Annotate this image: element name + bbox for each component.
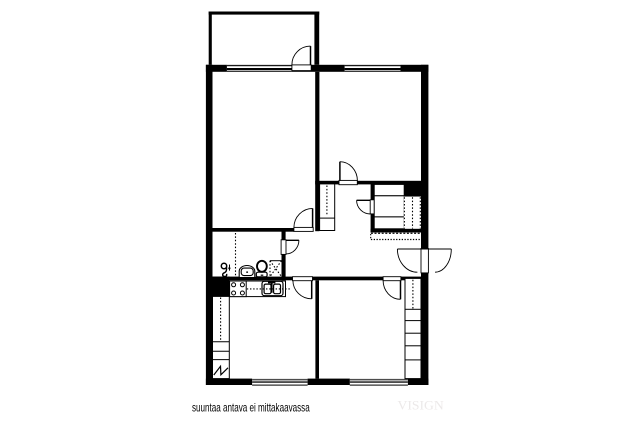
svg-text:VISIGN: VISIGN [398, 399, 444, 413]
svg-text:suuntaa antava ei mittakaavass: suuntaa antava ei mittakaavassa [192, 400, 310, 414]
